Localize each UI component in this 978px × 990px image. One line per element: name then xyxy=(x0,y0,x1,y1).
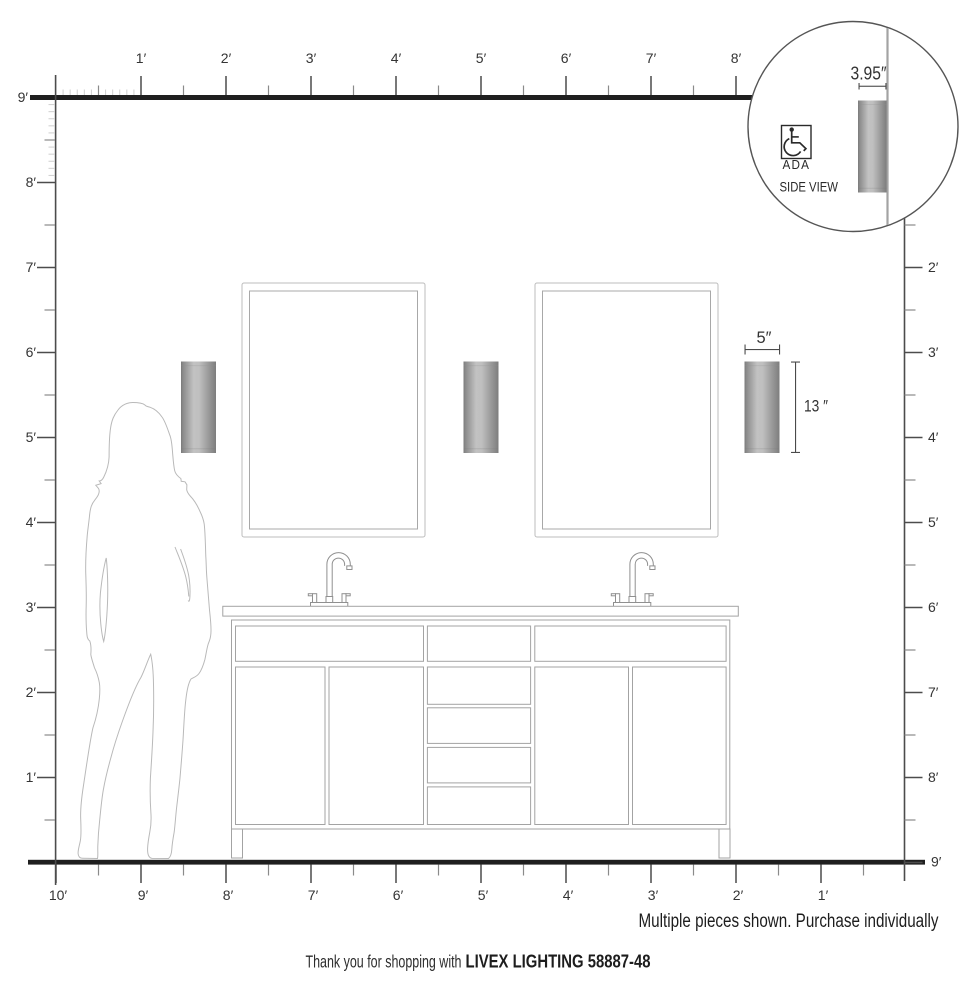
svg-text:LIVEX LIGHTING 58887-48: LIVEX LIGHTING 58887-48 xyxy=(466,951,651,972)
svg-text:Thank you for shopping with: Thank you for shopping with xyxy=(306,952,462,972)
svg-text:6′: 6′ xyxy=(393,887,404,903)
svg-text:3′: 3′ xyxy=(928,344,939,360)
svg-text:3′: 3′ xyxy=(648,887,659,903)
svg-text:2′: 2′ xyxy=(928,259,939,275)
svg-text:7′: 7′ xyxy=(308,887,319,903)
svg-text:13 ″: 13 ″ xyxy=(804,397,828,416)
svg-text:Multiple pieces shown. Purchas: Multiple pieces shown. Purchase individu… xyxy=(639,911,939,932)
svg-text:5″: 5″ xyxy=(757,328,772,347)
svg-text:6′: 6′ xyxy=(561,50,572,66)
svg-text:3.95″: 3.95″ xyxy=(851,64,888,84)
svg-text:8′: 8′ xyxy=(26,174,37,190)
svg-text:2′: 2′ xyxy=(221,50,232,66)
svg-text:5′: 5′ xyxy=(928,514,939,530)
svg-text:1′: 1′ xyxy=(818,887,829,903)
svg-text:8′: 8′ xyxy=(731,50,742,66)
svg-text:8′: 8′ xyxy=(928,769,939,785)
svg-text:9′: 9′ xyxy=(931,854,942,870)
svg-text:8′: 8′ xyxy=(223,887,234,903)
svg-text:7′: 7′ xyxy=(26,259,37,275)
svg-text:10′: 10′ xyxy=(49,887,68,903)
svg-text:ADA: ADA xyxy=(783,158,811,172)
svg-text:1′: 1′ xyxy=(26,769,37,785)
svg-text:7′: 7′ xyxy=(928,684,939,700)
svg-text:9′: 9′ xyxy=(138,887,149,903)
svg-text:5′: 5′ xyxy=(476,50,487,66)
svg-text:4′: 4′ xyxy=(391,50,402,66)
svg-text:5′: 5′ xyxy=(478,887,489,903)
svg-text:4′: 4′ xyxy=(563,887,574,903)
svg-text:2′: 2′ xyxy=(733,887,744,903)
svg-text:7′: 7′ xyxy=(646,50,657,66)
svg-text:6′: 6′ xyxy=(928,599,939,615)
svg-text:6′: 6′ xyxy=(26,344,37,360)
svg-text:5′: 5′ xyxy=(26,429,37,445)
svg-text:1′: 1′ xyxy=(136,50,147,66)
svg-text:4′: 4′ xyxy=(928,429,939,445)
svg-text:4′: 4′ xyxy=(26,514,37,530)
svg-text:SIDE VIEW: SIDE VIEW xyxy=(780,179,839,195)
svg-text:2′: 2′ xyxy=(26,684,37,700)
svg-text:9′: 9′ xyxy=(18,89,29,105)
svg-text:3′: 3′ xyxy=(306,50,317,66)
svg-text:3′: 3′ xyxy=(26,599,37,615)
